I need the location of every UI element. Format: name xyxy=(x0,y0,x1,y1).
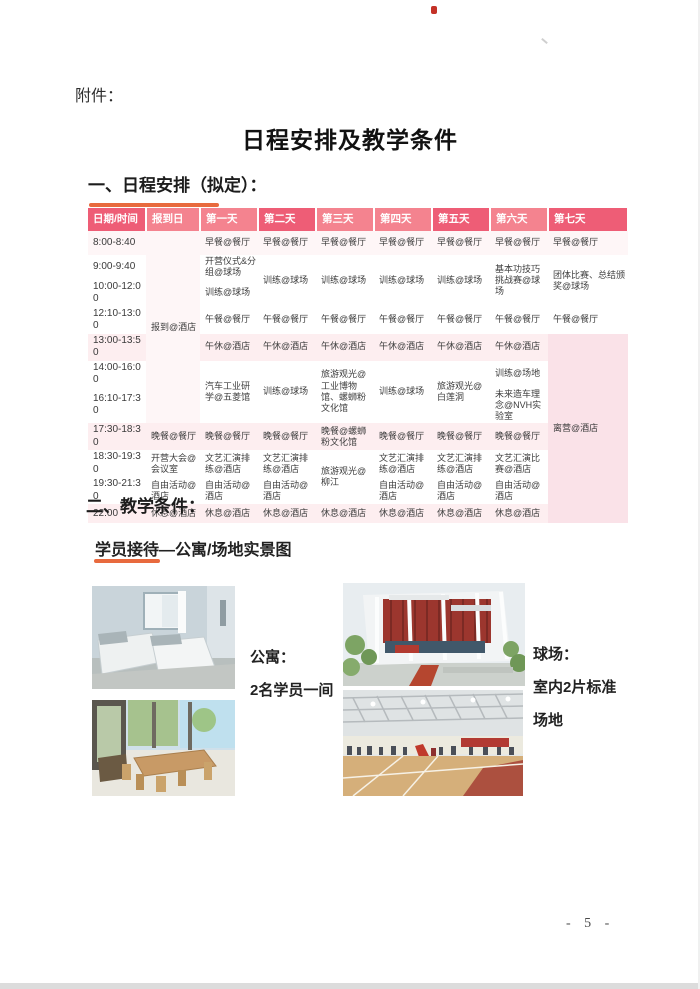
schedule-cell: 文艺汇演排练@酒店 xyxy=(432,450,490,477)
schedule-cell: 休息@酒店 xyxy=(200,504,258,523)
schedule-cell: 休息@酒店 xyxy=(490,504,548,523)
schedule-cell: 休息@酒店 xyxy=(374,504,432,523)
court-caption-desc-line1: 室内2片标准 xyxy=(533,671,616,704)
time-cell: 16:10-17:30 xyxy=(88,388,146,424)
schedule-cell: 旅游观光@柳江 xyxy=(316,450,374,504)
schedule-cell: 午休@酒店 xyxy=(200,334,258,361)
schedule-cell: 午餐@餐厅 xyxy=(316,307,374,334)
scanned-document-page: 附件： 日程安排及教学条件 一、日程安排（拟定）： 日期/时间 报到日 第一天 … xyxy=(0,0,700,989)
schedule-cell: 自由活动@酒店 xyxy=(374,477,432,504)
cell-checkin-hotel: 报到@酒店 xyxy=(146,231,200,423)
schedule-cell: 休息@酒店 xyxy=(316,504,374,523)
schedule-cell: 团体比赛、总结颁奖@球场 xyxy=(548,255,628,307)
apartment-caption: 公寓： 2名学员一间 xyxy=(250,641,333,707)
schedule-cell: 文艺汇演比赛@酒店 xyxy=(490,450,548,477)
schedule-cell: 早餐@餐厅 xyxy=(548,231,628,255)
schedule-cell: 早餐@餐厅 xyxy=(490,231,548,255)
col-header-day7: 第七天 xyxy=(548,208,628,231)
schedule-header-row: 日期/时间 报到日 第一天 第二天 第三天 第四天 第五天 第六天 第七天 xyxy=(88,208,628,231)
schedule-row-1730: 17:30-18:30 晚餐@餐厅 晚餐@餐厅 晚餐@餐厅 晚餐@螺蛳粉文化馆 … xyxy=(88,423,628,450)
schedule-cell: 晚餐@螺蛳粉文化馆 xyxy=(316,423,374,450)
schedule-cell: 早餐@餐厅 xyxy=(258,231,316,255)
schedule-cell: 训练@球场 xyxy=(432,255,490,307)
schedule-cell: 午餐@餐厅 xyxy=(548,307,628,334)
apartment-caption-title: 公寓： xyxy=(250,641,333,674)
schedule-cell: 午餐@餐厅 xyxy=(200,307,258,334)
col-header-day2: 第二天 xyxy=(258,208,316,231)
gym-court-photo xyxy=(343,690,523,796)
schedule-cell: 午休@酒店 xyxy=(432,334,490,361)
time-cell: 8:00-8:40 xyxy=(88,231,146,255)
gallery-heading-underline-accent xyxy=(94,559,160,563)
schedule-cell: 自由活动@酒店 xyxy=(200,477,258,504)
schedule-cell: 自由活动@酒店 xyxy=(432,477,490,504)
court-caption: 球场： 室内2片标准 场地 xyxy=(533,638,616,737)
col-header-day6: 第六天 xyxy=(490,208,548,231)
schedule-cell: 午餐@餐厅 xyxy=(432,307,490,334)
schedule-cell: 汽车工业研学@五菱馆 xyxy=(200,361,258,424)
schedule-cell: 早餐@餐厅 xyxy=(200,231,258,255)
schedule-cell: 旅游观光@白莲洞 xyxy=(432,361,490,424)
schedule-cell: 晚餐@餐厅 xyxy=(374,423,432,450)
schedule-cell: 休息@酒店 xyxy=(258,504,316,523)
col-header-checkin-day: 报到日 xyxy=(146,208,200,231)
apartment-dining-photo xyxy=(92,700,235,796)
schedule-cell: 自由活动@酒店 xyxy=(258,477,316,504)
schedule-cell: 自由活动@酒店 xyxy=(490,477,548,504)
schedule-cell: 晚餐@餐厅 xyxy=(490,423,548,450)
time-cell: 12:10-13:00 xyxy=(88,307,146,334)
scan-artifact-gray-mark xyxy=(541,38,548,44)
page-number: - 5 - xyxy=(566,916,614,932)
court-caption-desc-line2: 场地 xyxy=(533,704,616,737)
schedule-cell: 训练@球场 xyxy=(258,255,316,307)
schedule-cell: 开营仪式&分组@球场 xyxy=(200,255,258,280)
scan-artifact-red-mark xyxy=(431,6,437,14)
schedule-cell: 晚餐@餐厅 xyxy=(200,423,258,450)
col-header-day1: 第一天 xyxy=(200,208,258,231)
schedule-cell: 午餐@餐厅 xyxy=(490,307,548,334)
schedule-table: 日期/时间 报到日 第一天 第二天 第三天 第四天 第五天 第六天 第七天 8:… xyxy=(88,208,629,523)
gym-exterior-photo xyxy=(343,583,525,686)
schedule-cell: 午休@酒店 xyxy=(316,334,374,361)
schedule-cell: 训练@球场 xyxy=(374,255,432,307)
schedule-cell: 训练@球场 xyxy=(258,361,316,424)
schedule-cell: 基本功技巧挑战赛@球场 xyxy=(490,255,548,307)
schedule-cell: 早餐@餐厅 xyxy=(316,231,374,255)
attachment-label: 附件： xyxy=(75,82,123,106)
section1-heading: 一、日程安排（拟定）： xyxy=(88,171,267,196)
schedule-cell: 文艺汇演排练@酒店 xyxy=(200,450,258,477)
schedule-cell: 文艺汇演排练@酒店 xyxy=(374,450,432,477)
col-header-day3: 第三天 xyxy=(316,208,374,231)
time-cell: 18:30-19:30 xyxy=(88,450,146,477)
heading-underline-accent xyxy=(89,203,219,207)
schedule-cell: 休息@酒店 xyxy=(432,504,490,523)
time-cell: 10:00-12:00 xyxy=(88,280,146,307)
schedule-cell: 午休@酒店 xyxy=(374,334,432,361)
schedule-cell: 午休@酒店 xyxy=(258,334,316,361)
col-header-datetime: 日期/时间 xyxy=(88,208,146,231)
court-caption-title: 球场： xyxy=(533,638,616,671)
scan-edge-bottom xyxy=(0,983,700,989)
schedule-cell: 开营大会@会议室 xyxy=(146,450,200,477)
document-title: 日程安排及教学条件 xyxy=(0,121,700,155)
col-header-day5: 第五天 xyxy=(432,208,490,231)
schedule-cell: 午餐@餐厅 xyxy=(374,307,432,334)
schedule-cell: 晚餐@餐厅 xyxy=(258,423,316,450)
schedule-cell: 未来造车理念@NVH实验室 xyxy=(490,388,548,424)
time-cell: 14:00-16:00 xyxy=(88,361,146,388)
schedule-cell: 训练@球场 xyxy=(200,280,258,307)
schedule-cell: 旅游观光@工业博物馆、螺蛳粉文化馆 xyxy=(316,361,374,424)
schedule-cell: 晚餐@餐厅 xyxy=(432,423,490,450)
time-cell: 13:00-13:50 xyxy=(88,334,146,361)
section2-heading: 二、教学条件： xyxy=(86,492,205,517)
apartment-caption-desc: 2名学员一间 xyxy=(250,674,333,707)
schedule-cell: 训练@球场 xyxy=(316,255,374,307)
schedule-cell: 午休@酒店 xyxy=(490,334,548,361)
time-cell: 9:00-9:40 xyxy=(88,255,146,280)
schedule-cell: 训练@场地 xyxy=(490,361,548,388)
schedule-row-1830: 18:30-19:30 开营大会@会议室 文艺汇演排练@酒店 文艺汇演排练@酒店… xyxy=(88,450,628,477)
schedule-cell: 早餐@餐厅 xyxy=(432,231,490,255)
schedule-row-0800: 8:00-8:40 报到@酒店 早餐@餐厅 早餐@餐厅 早餐@餐厅 早餐@餐厅 … xyxy=(88,231,628,255)
schedule-cell: 晚餐@餐厅 xyxy=(146,423,200,450)
col-header-day4: 第四天 xyxy=(374,208,432,231)
schedule-cell: 训练@球场 xyxy=(374,361,432,424)
schedule-cell: 午餐@餐厅 xyxy=(258,307,316,334)
schedule-cell: 文艺汇演排练@酒店 xyxy=(258,450,316,477)
schedule-cell: 早餐@餐厅 xyxy=(374,231,432,255)
apartment-bedroom-photo xyxy=(92,586,235,689)
time-cell: 17:30-18:30 xyxy=(88,423,146,450)
gallery-heading: 学员接待—公寓/场地实景图 xyxy=(95,536,291,560)
cell-checkout-hotel: 离营@酒店 xyxy=(548,334,628,524)
